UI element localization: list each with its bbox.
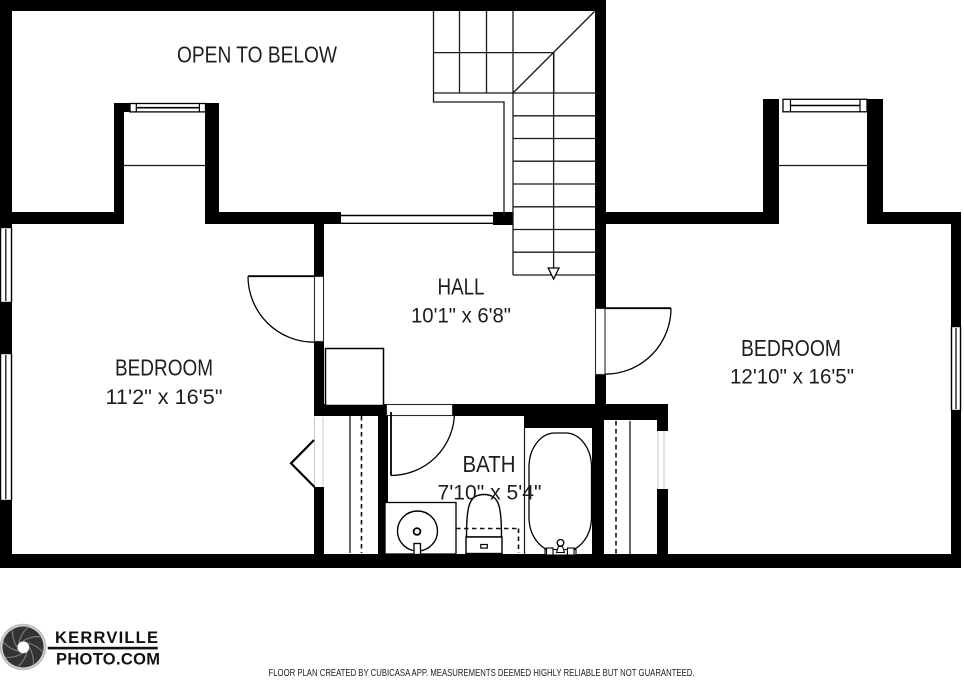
svg-text:10'1" x 6'8": 10'1" x 6'8"	[411, 304, 511, 328]
svg-text:KERRVILLE: KERRVILLE	[55, 629, 158, 647]
svg-text:PHOTO.COM: PHOTO.COM	[56, 651, 160, 669]
svg-text:11'2" x 16'5": 11'2" x 16'5"	[106, 385, 223, 409]
svg-text:FLOOR PLAN CREATED BY CUBICASA: FLOOR PLAN CREATED BY CUBICASA APP. MEAS…	[269, 668, 695, 677]
svg-text:OPEN TO BELOW: OPEN TO BELOW	[177, 42, 337, 68]
svg-text:BEDROOM: BEDROOM	[115, 355, 213, 381]
svg-text:HALL: HALL	[438, 274, 485, 300]
svg-text:7'10" x 5'4": 7'10" x 5'4"	[438, 481, 542, 505]
svg-text:BEDROOM: BEDROOM	[741, 335, 841, 361]
svg-text:BATH: BATH	[463, 451, 516, 477]
svg-text:12'10" x 16'5": 12'10" x 16'5"	[730, 365, 854, 389]
